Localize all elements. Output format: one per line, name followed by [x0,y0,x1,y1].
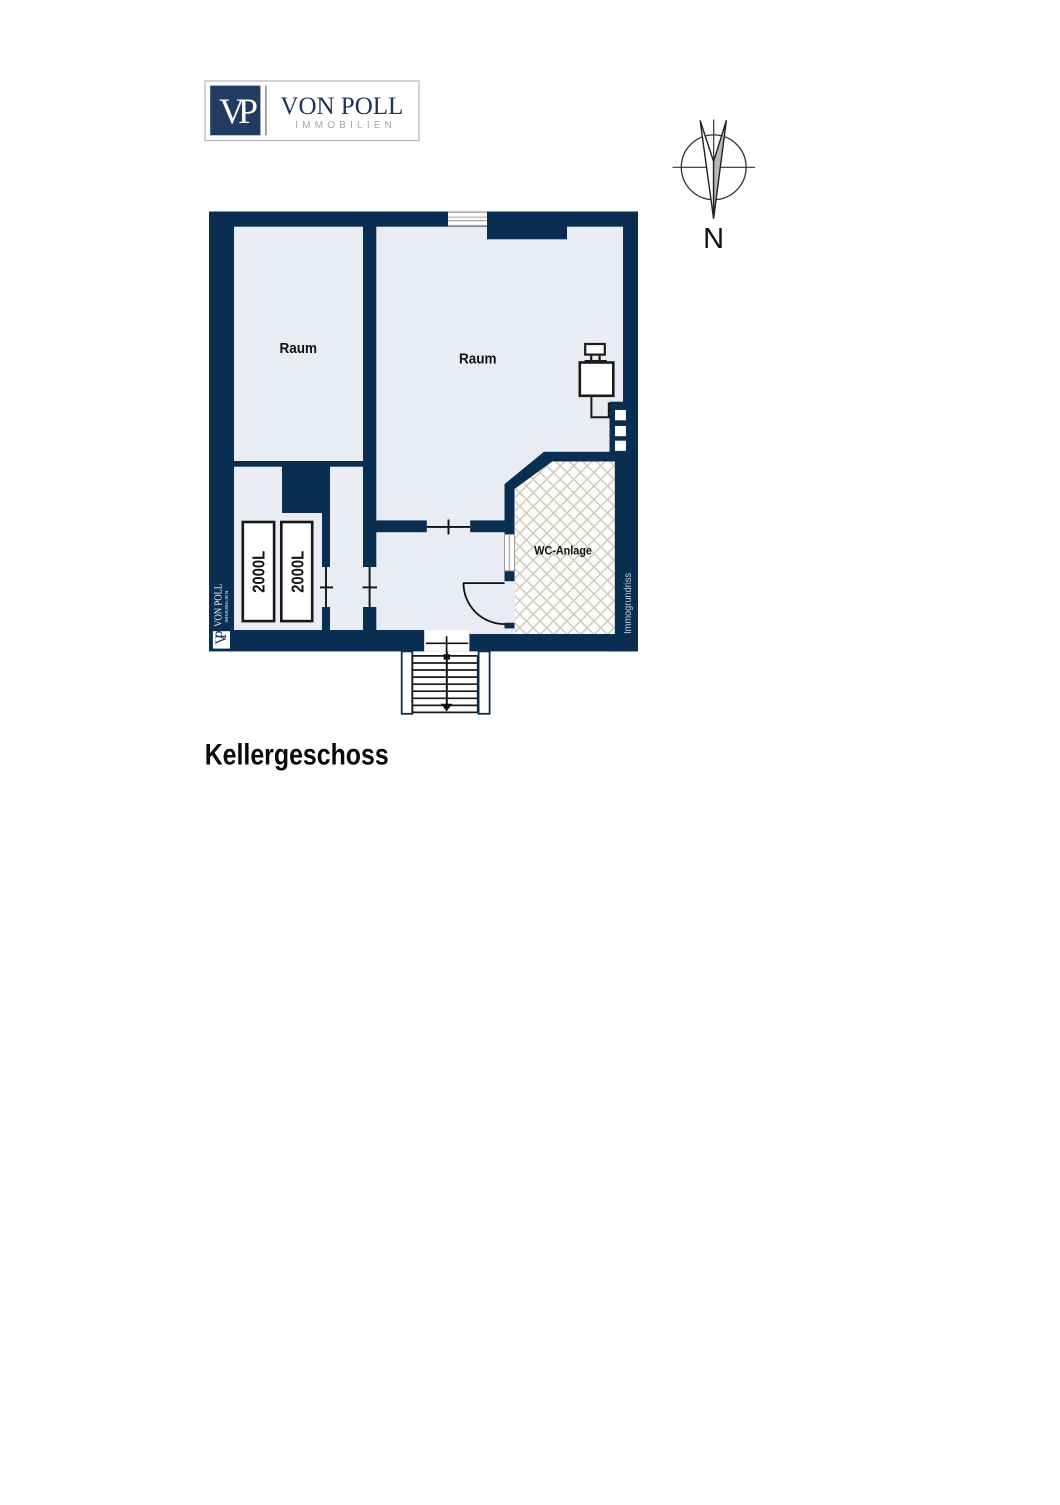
svg-text:VON POLL: VON POLL [280,93,403,120]
svg-text:N: N [703,223,724,255]
svg-text:IMMOBILIEN: IMMOBILIEN [224,591,229,623]
svg-text:IMMOBILIEN: IMMOBILIEN [295,120,396,131]
svg-text:2000L: 2000L [287,551,307,593]
svg-text:Immogrundriss: Immogrundriss [622,573,634,634]
svg-text:2000L: 2000L [248,551,268,593]
svg-text:WC-Anlage: WC-Anlage [534,546,592,558]
svg-text:Raum: Raum [459,351,497,368]
svg-text:Raum: Raum [280,340,318,357]
svg-text:Kellergeschoss: Kellergeschoss [205,738,389,771]
svg-text:VON POLL: VON POLL [213,584,224,627]
